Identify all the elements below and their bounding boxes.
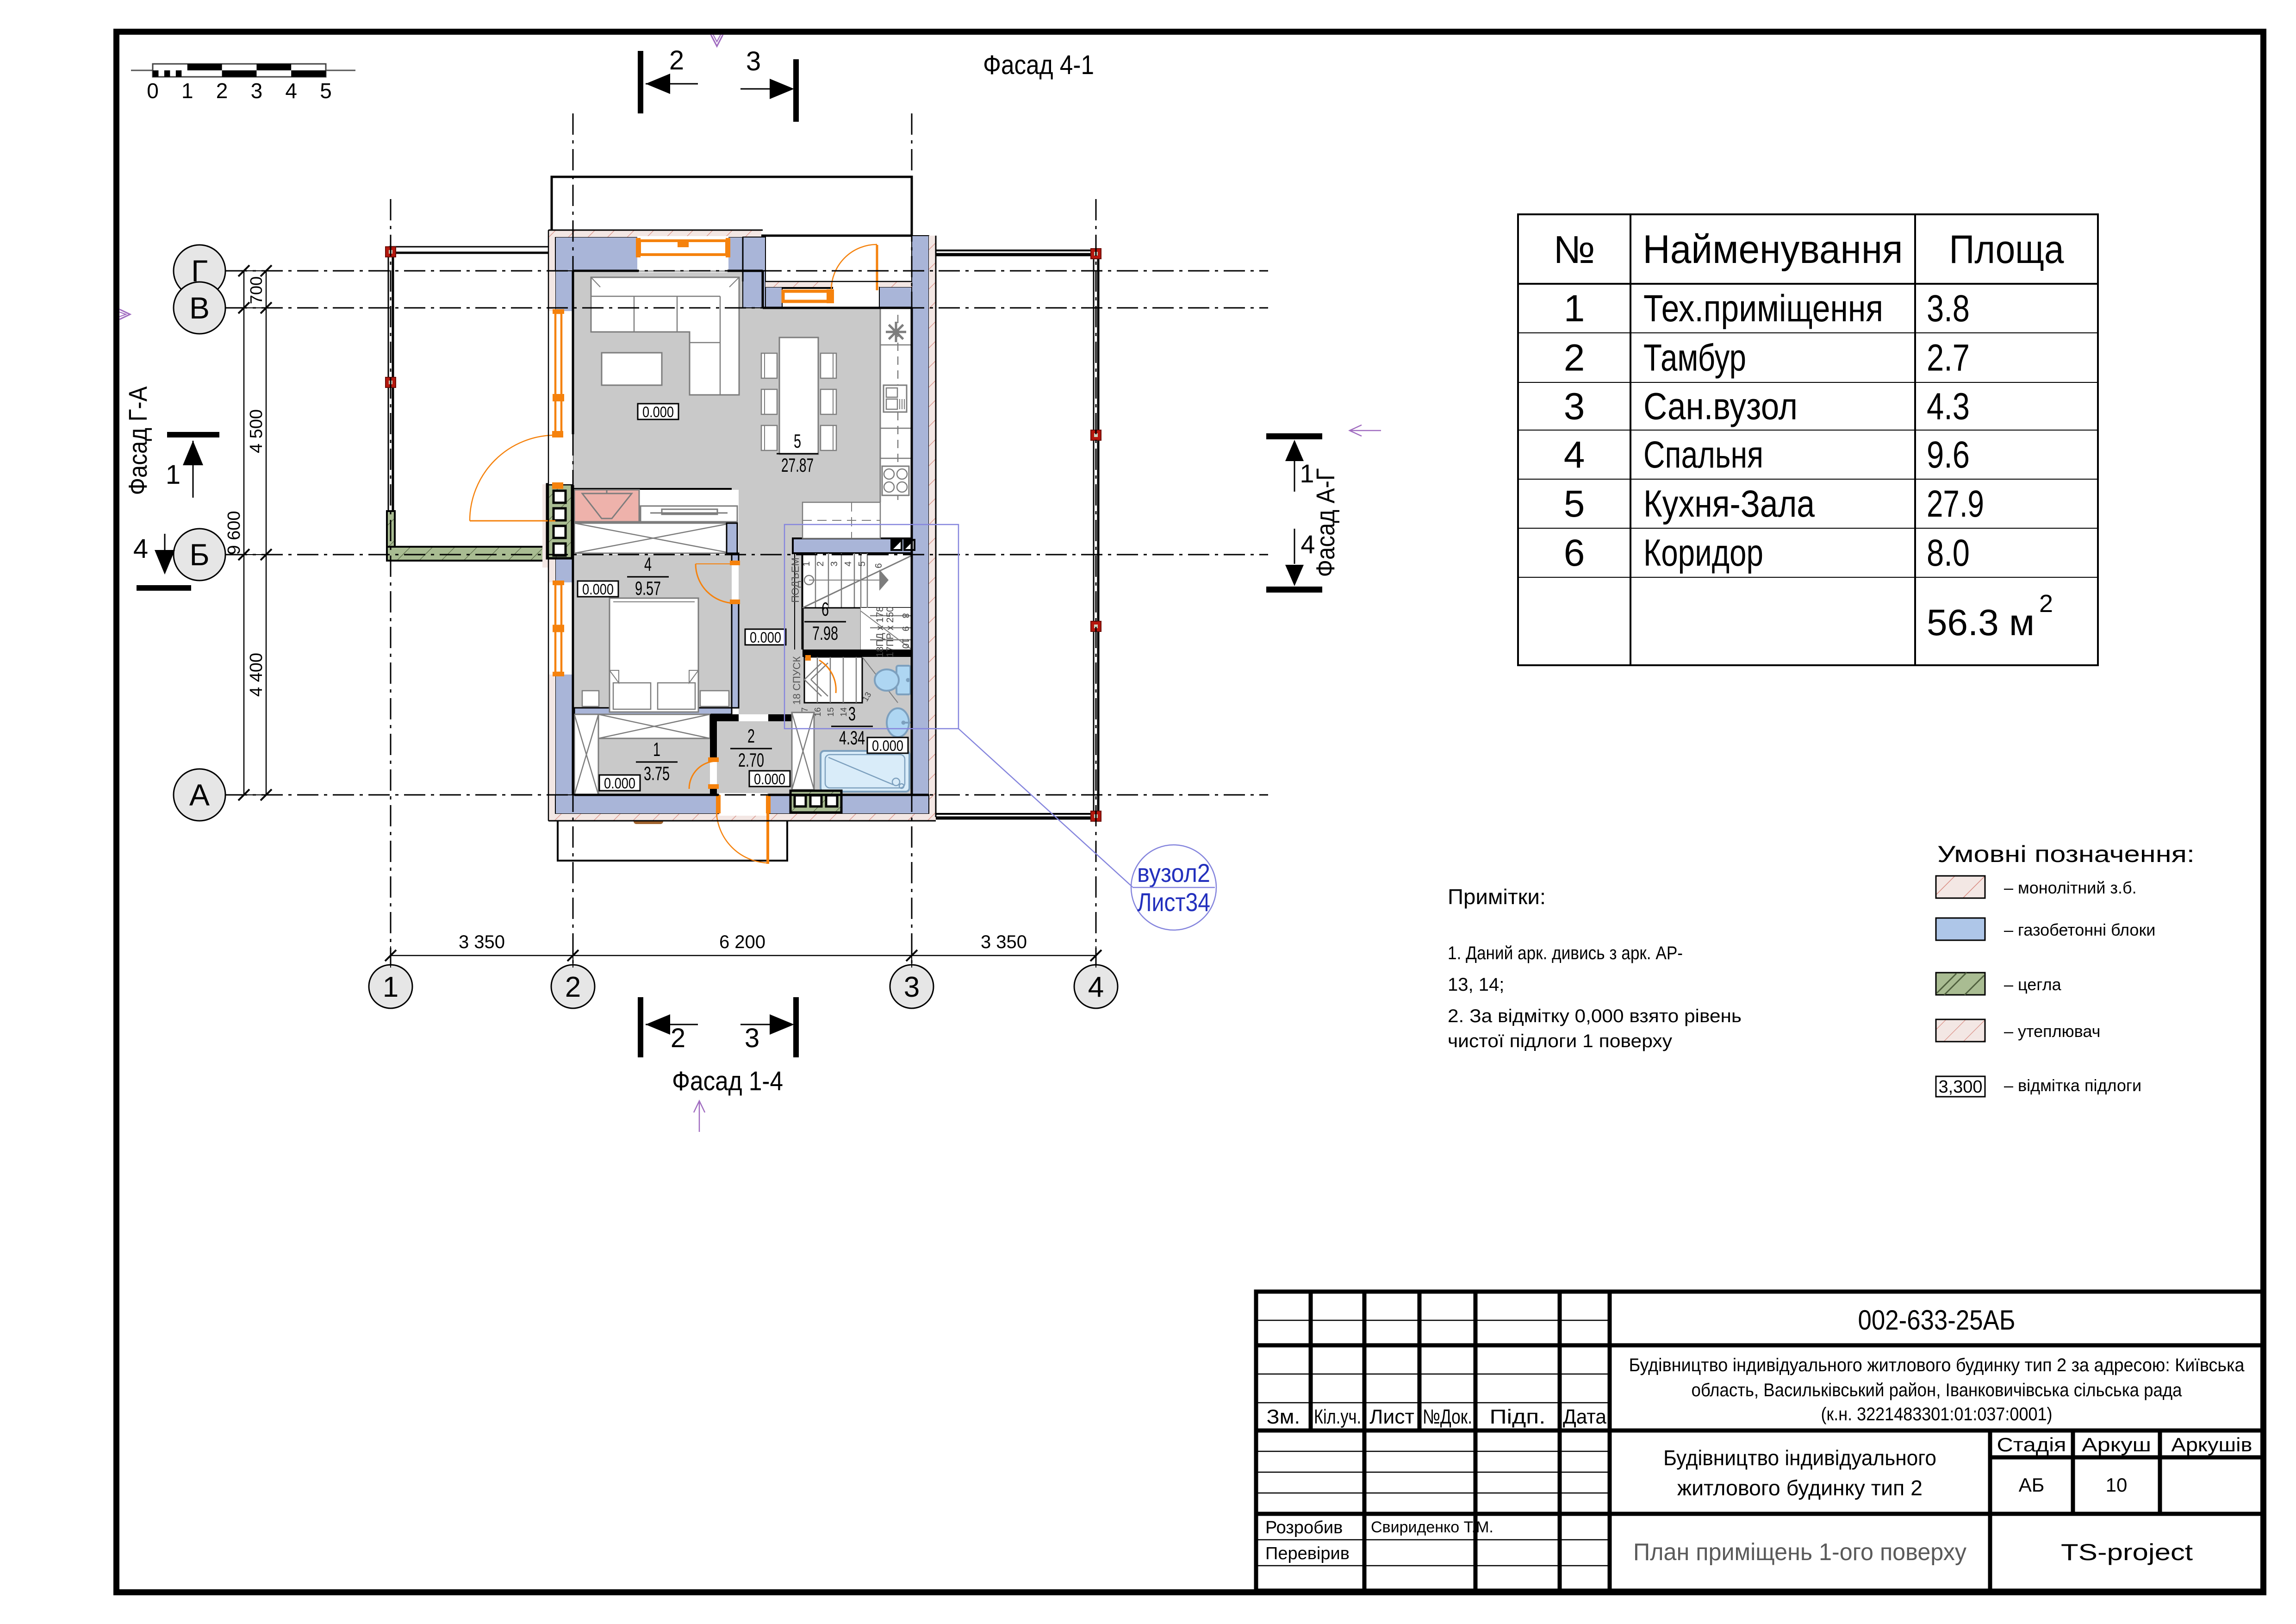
svg-text:Зм.: Зм. <box>1267 1405 1300 1428</box>
svg-text:житлового будинку тип 2: житлового будинку тип 2 <box>1677 1476 1923 1500</box>
svg-text:Аркушів: Аркушів <box>2172 1434 2252 1455</box>
svg-text:7.98: 7.98 <box>812 622 838 644</box>
svg-text:3,300: 3,300 <box>1938 1077 1982 1097</box>
svg-text:Коридор: Коридор <box>1643 532 1763 574</box>
svg-text:Лист34: Лист34 <box>1137 887 1210 917</box>
svg-text:3: 3 <box>745 1023 759 1053</box>
svg-text:3: 3 <box>848 703 856 725</box>
svg-text:ПОДЪЕМ: ПОДЪЕМ <box>790 557 801 603</box>
svg-text:Фасад А-Г: Фасад А-Г <box>1311 468 1340 577</box>
svg-text:Свириденко Т.М.: Свириденко Т.М. <box>1371 1518 1493 1536</box>
svg-text:Кухня-Зала: Кухня-Зала <box>1643 483 1815 525</box>
svg-text:Примітки:: Примітки: <box>1448 885 1546 909</box>
svg-text:Перевірив: Перевірив <box>1265 1544 1350 1563</box>
svg-text:4: 4 <box>1088 971 1104 1003</box>
svg-text:3: 3 <box>1564 386 1585 428</box>
svg-text:4: 4 <box>285 79 297 103</box>
svg-text:0.000: 0.000 <box>872 737 903 754</box>
svg-text:700: 700 <box>247 276 266 304</box>
svg-text:0.000: 0.000 <box>642 404 674 420</box>
svg-text:56.3 м: 56.3 м <box>1927 602 2035 643</box>
svg-text:1: 1 <box>181 79 193 103</box>
svg-text:3.75: 3.75 <box>644 762 670 784</box>
svg-text:2: 2 <box>565 971 581 1003</box>
svg-text:Дата: Дата <box>1563 1405 1607 1428</box>
svg-text:Підп.: Підп. <box>1490 1405 1546 1428</box>
svg-text:5: 5 <box>857 561 867 566</box>
svg-text:2. За відмітку 0,000 взято: 2. За відмітку 0,000 взято рівень <box>1448 1006 1742 1026</box>
svg-text:10: 10 <box>2106 1474 2128 1496</box>
svg-text:0.000: 0.000 <box>754 771 785 787</box>
svg-text:2.70: 2.70 <box>738 749 764 771</box>
svg-text:Тамбур: Тамбур <box>1643 337 1746 379</box>
svg-text:Розробив: Розробив <box>1265 1518 1343 1537</box>
svg-text:№Док.: №Док. <box>1423 1405 1472 1428</box>
svg-text:– газобетонні блоки: – газобетонні блоки <box>2004 920 2155 939</box>
svg-text:(к.н. 3221483301:01:037:0001): (к.н. 3221483301:01:037:0001) <box>1821 1404 2053 1424</box>
svg-text:27.87: 27.87 <box>781 454 814 476</box>
svg-text:Найменування: Найменування <box>1643 227 1903 272</box>
svg-text:Фасад Г-А: Фасад Г-А <box>123 386 152 495</box>
svg-text:2: 2 <box>815 561 826 566</box>
svg-text:3: 3 <box>746 46 761 76</box>
svg-text:В: В <box>189 291 210 325</box>
svg-text:15: 15 <box>826 707 835 717</box>
svg-text:0: 0 <box>147 79 159 103</box>
svg-text:– цегла: – цегла <box>2004 975 2062 994</box>
svg-text:Спальня: Спальня <box>1643 434 1763 476</box>
svg-text:А: А <box>189 778 210 812</box>
svg-text:– монолітний з.б.: – монолітний з.б. <box>2004 878 2137 897</box>
svg-text:чистої підлоги 1 поверху: чистої підлоги 1 поверху <box>1448 1031 1672 1051</box>
svg-text:область, Васильківський райо: область, Васильківський район, Іванкович… <box>1692 1380 2183 1400</box>
svg-text:4.34: 4.34 <box>839 727 865 749</box>
svg-text:1: 1 <box>166 460 180 490</box>
svg-text:18 СПУСК: 18 СПУСК <box>791 656 803 705</box>
svg-text:2: 2 <box>747 725 755 747</box>
svg-text:– утеплювач: – утеплювач <box>2004 1022 2100 1041</box>
svg-text:2: 2 <box>671 1023 685 1053</box>
svg-text:2: 2 <box>216 79 228 103</box>
svg-text:4: 4 <box>1564 434 1585 476</box>
svg-text:АБ: АБ <box>2019 1474 2045 1496</box>
svg-text:Будівництво індивідуального: Будівництво індивідуального <box>1663 1446 1936 1470</box>
svg-text:2: 2 <box>2039 590 2053 618</box>
svg-text:1: 1 <box>653 738 660 760</box>
svg-text:Б: Б <box>189 537 209 572</box>
svg-text:6 200: 6 200 <box>719 932 765 952</box>
svg-text:5: 5 <box>320 79 332 103</box>
svg-text:6: 6 <box>821 598 829 620</box>
svg-text:Аркуш: Аркуш <box>2082 1434 2151 1455</box>
svg-text:1: 1 <box>802 561 812 566</box>
svg-text:Тех.приміщення: Тех.приміщення <box>1643 287 1883 330</box>
svg-text:4: 4 <box>133 534 148 564</box>
svg-text:Сан.вузол: Сан.вузол <box>1643 386 1798 428</box>
svg-text:TS-project: TS-project <box>2061 1539 2193 1565</box>
svg-text:2: 2 <box>1564 337 1585 379</box>
svg-text:Стадія: Стадія <box>1997 1434 2066 1455</box>
svg-text:2.7: 2.7 <box>1927 337 1970 379</box>
svg-text:0.000: 0.000 <box>750 629 781 646</box>
svg-text:5: 5 <box>794 430 801 452</box>
svg-text:3.8: 3.8 <box>1927 287 1970 330</box>
svg-text:Площа: Площа <box>1949 227 2064 272</box>
svg-text:План приміщень 1-ого поверх: План приміщень 1-ого поверху <box>1633 1539 1966 1566</box>
svg-text:0.000: 0.000 <box>582 581 614 598</box>
svg-text:вузол2: вузол2 <box>1137 858 1210 887</box>
svg-text:4 500: 4 500 <box>247 409 266 453</box>
svg-text:Умовні позначення:: Умовні позначення: <box>1937 841 2195 867</box>
svg-text:9 600: 9 600 <box>224 511 244 555</box>
svg-text:9.57: 9.57 <box>635 577 661 599</box>
svg-text:8: 8 <box>900 613 910 618</box>
svg-text:27.9: 27.9 <box>1927 483 1984 525</box>
svg-text:– відмітка підлоги: – відмітка підлоги <box>2004 1076 2141 1095</box>
svg-text:2: 2 <box>669 45 684 75</box>
svg-text:13, 14;: 13, 14; <box>1448 974 1504 995</box>
svg-text:1: 1 <box>1564 287 1585 330</box>
svg-text:3 350: 3 350 <box>981 932 1027 952</box>
svg-text:Фасад 1-4: Фасад 1-4 <box>672 1066 783 1096</box>
svg-text:3: 3 <box>904 971 920 1003</box>
svg-text:17ПР х 250: 17ПР х 250 <box>885 606 896 657</box>
svg-text:4: 4 <box>644 553 652 575</box>
svg-text:Кіл.уч.: Кіл.уч. <box>1314 1405 1361 1428</box>
svg-text:3: 3 <box>829 561 840 566</box>
svg-text:Фасад 4-1: Фасад 4-1 <box>983 50 1094 80</box>
svg-text:Будівництво індивідуального: Будівництво індивідуального житлового бу… <box>1629 1355 2245 1375</box>
svg-text:10: 10 <box>900 638 910 649</box>
svg-text:0.000: 0.000 <box>604 775 635 792</box>
svg-text:4 400: 4 400 <box>247 653 266 697</box>
svg-text:6: 6 <box>1564 532 1585 574</box>
svg-text:9: 9 <box>900 626 910 631</box>
svg-text:Лист: Лист <box>1369 1405 1414 1428</box>
svg-text:4.3: 4.3 <box>1927 386 1970 428</box>
svg-text:14: 14 <box>839 707 848 717</box>
svg-text:1: 1 <box>383 971 398 1003</box>
svg-text:1. Даний арк. дивись з ар: 1. Даний арк. дивись з арк. АР- <box>1448 943 1683 963</box>
svg-text:9.6: 9.6 <box>1927 434 1970 476</box>
svg-text:002-633-25АБ: 002-633-25АБ <box>1858 1305 2016 1336</box>
svg-text:8.0: 8.0 <box>1927 532 1970 574</box>
svg-text:5: 5 <box>1564 483 1585 525</box>
svg-text:4: 4 <box>843 561 853 566</box>
svg-text:6: 6 <box>874 563 884 568</box>
svg-text:№: № <box>1553 228 1595 271</box>
svg-text:3 350: 3 350 <box>459 932 505 952</box>
svg-text:18ПД х 178: 18ПД х 178 <box>875 606 885 657</box>
svg-text:3: 3 <box>251 79 263 103</box>
